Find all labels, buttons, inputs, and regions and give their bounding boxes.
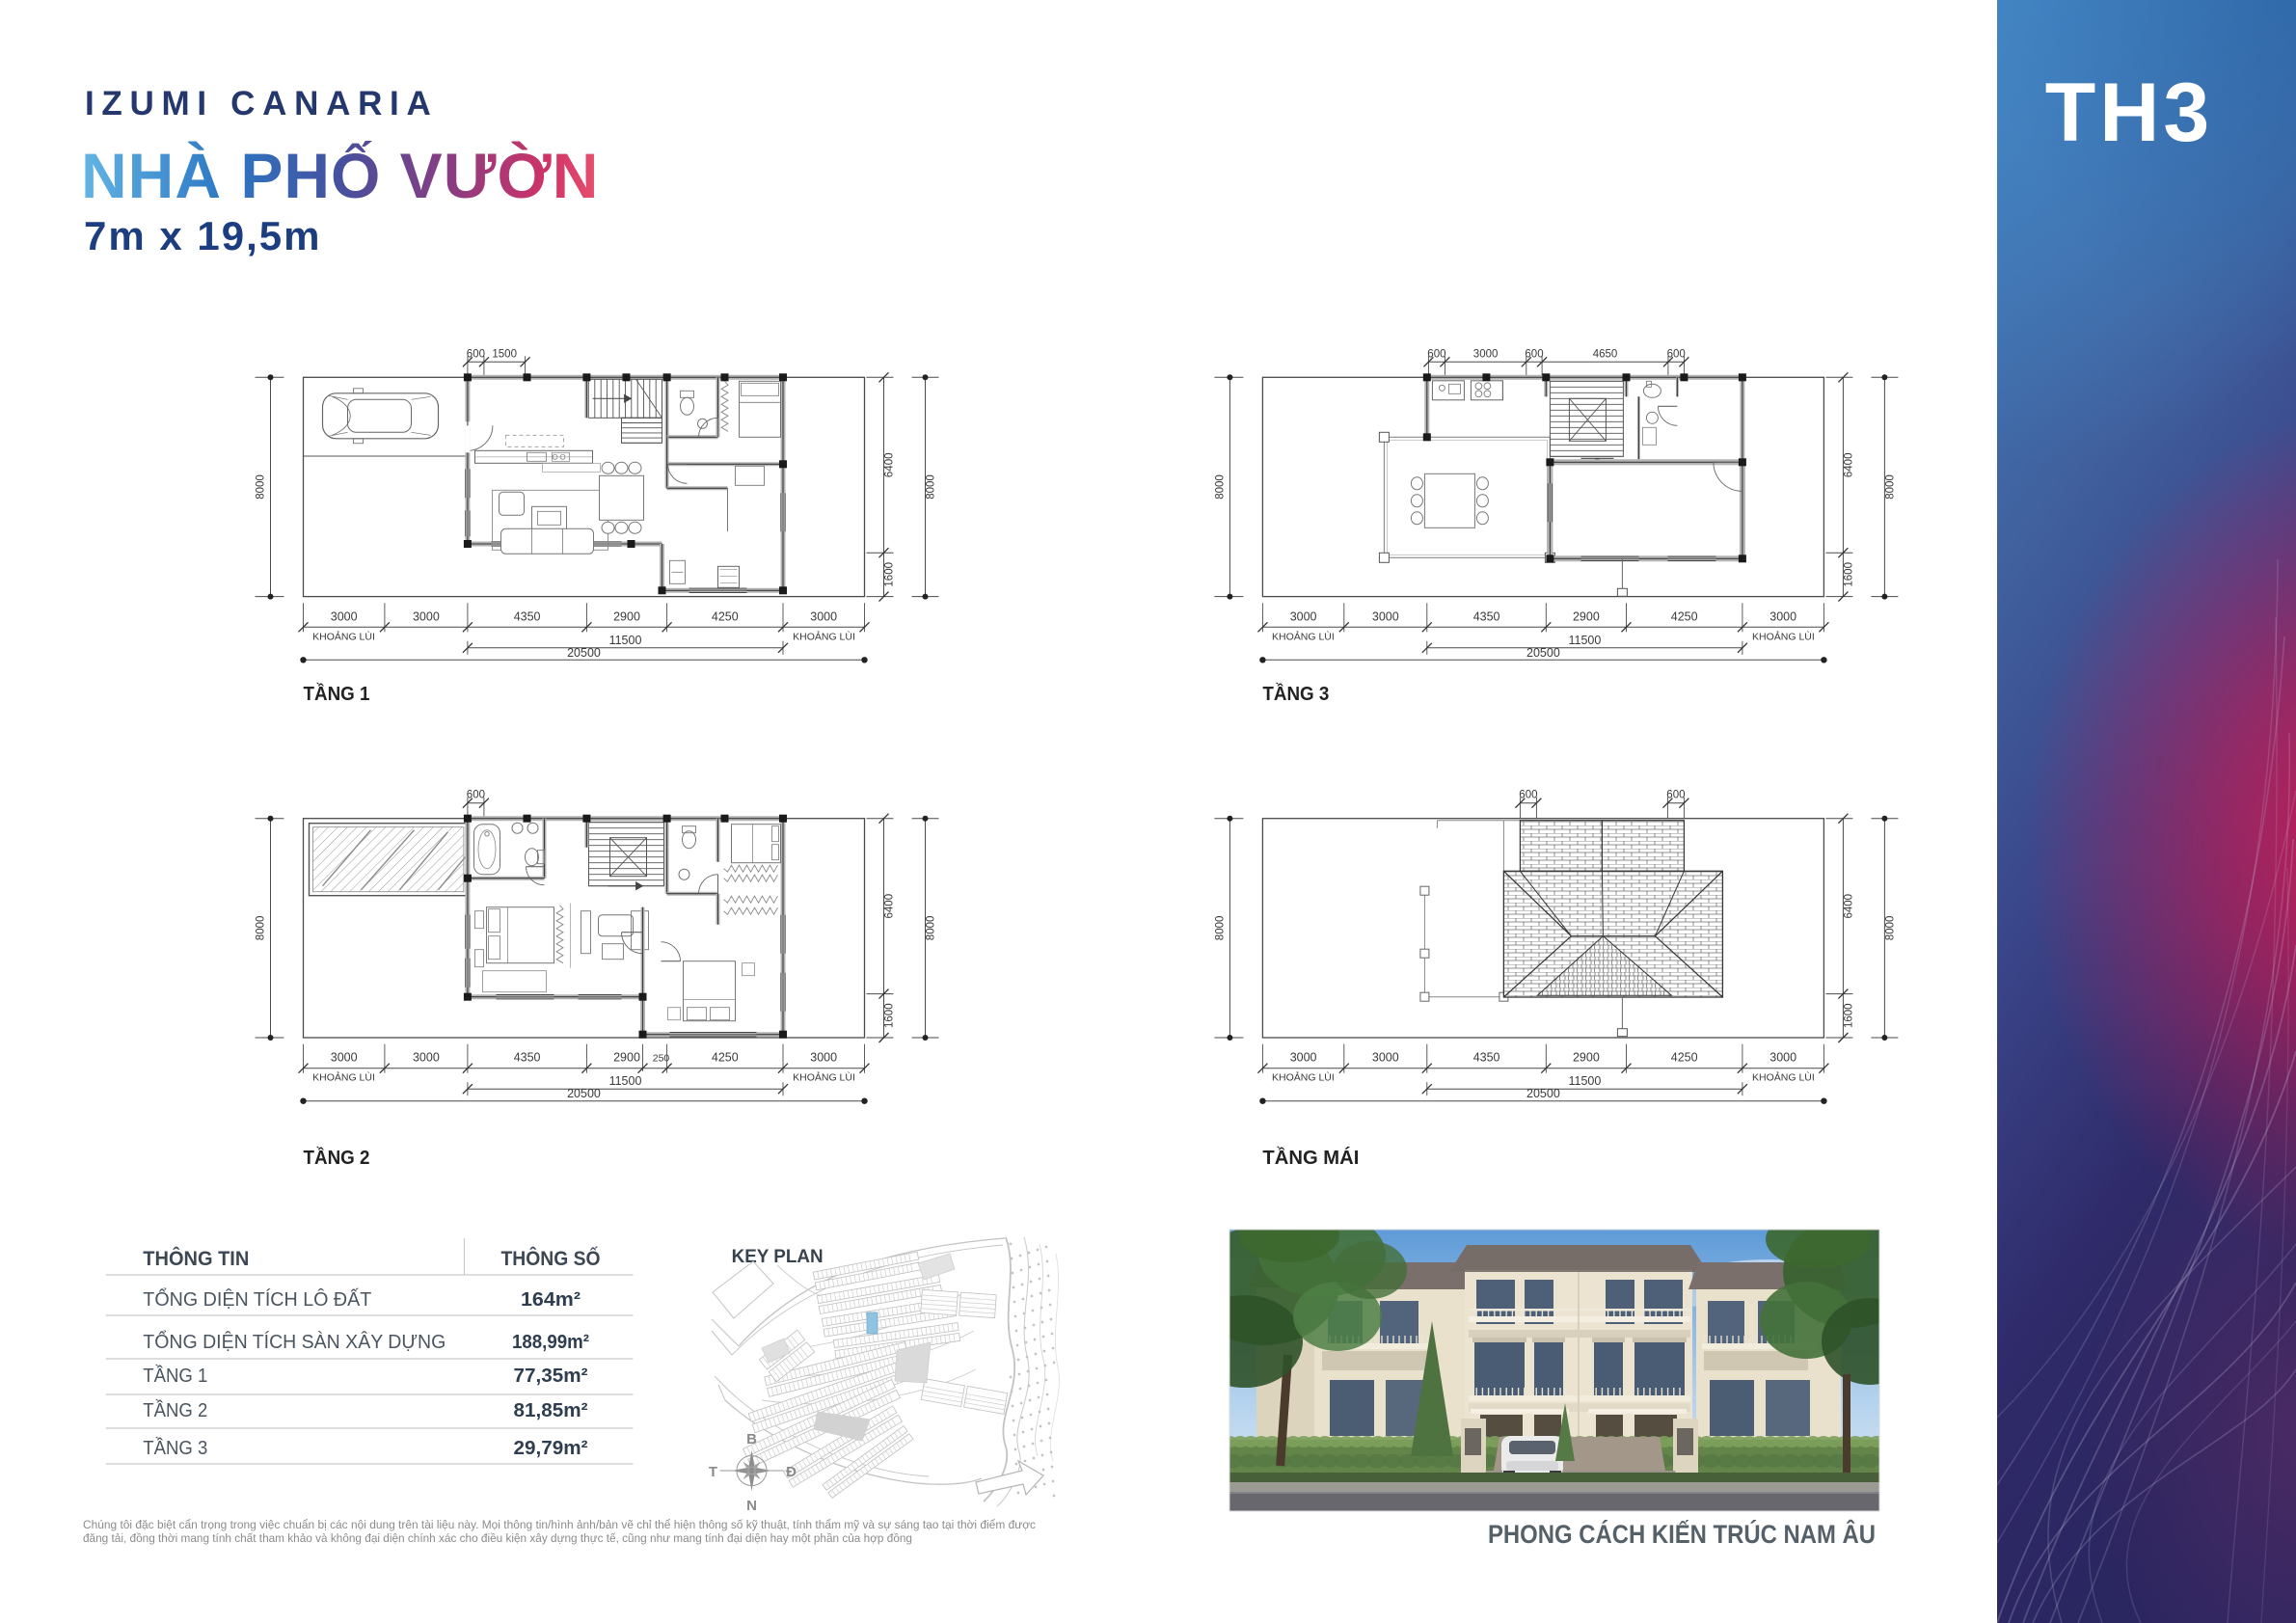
svg-text:IZUMI CANARIA: IZUMI CANARIA bbox=[85, 85, 438, 122]
svg-text:3000: 3000 bbox=[1372, 1051, 1399, 1065]
svg-text:600: 600 bbox=[1427, 348, 1445, 360]
svg-text:4350: 4350 bbox=[1473, 609, 1500, 623]
svg-text:TỔNG DIỆN TÍCH SÀN XÂY DỰNG: TỔNG DIỆN TÍCH SÀN XÂY DỰNG bbox=[143, 1330, 446, 1353]
svg-text:4350: 4350 bbox=[514, 609, 541, 623]
svg-text:600: 600 bbox=[1666, 790, 1685, 801]
svg-text:4250: 4250 bbox=[712, 609, 739, 623]
svg-text:2900: 2900 bbox=[1573, 609, 1600, 623]
svg-text:3000: 3000 bbox=[1372, 609, 1399, 623]
svg-text:3000: 3000 bbox=[413, 1051, 440, 1065]
svg-text:4650: 4650 bbox=[1593, 348, 1618, 360]
svg-text:20500: 20500 bbox=[567, 1087, 601, 1100]
svg-text:20500: 20500 bbox=[1526, 646, 1560, 660]
svg-text:3000: 3000 bbox=[331, 609, 358, 623]
svg-text:NHÀ PHỐ VƯỜN: NHÀ PHỐ VƯỜN bbox=[81, 140, 599, 211]
svg-text:TẦNG 3: TẦNG 3 bbox=[143, 1437, 207, 1459]
svg-text:1600: 1600 bbox=[884, 562, 896, 587]
svg-text:KHOẢNG LÙI: KHOẢNG LÙI bbox=[793, 630, 855, 642]
svg-text:1600: 1600 bbox=[1843, 562, 1854, 587]
svg-text:KHOẢNG LÙI: KHOẢNG LÙI bbox=[1272, 630, 1335, 642]
svg-text:TẦNG 2: TẦNG 2 bbox=[143, 1399, 207, 1421]
svg-text:KHOẢNG LÙI: KHOẢNG LÙI bbox=[312, 630, 375, 642]
svg-text:11500: 11500 bbox=[609, 1074, 642, 1088]
svg-text:PHONG CÁCH KIẾN TRÚC NAM ÂU: PHONG CÁCH KIẾN TRÚC NAM ÂU bbox=[1488, 1520, 1876, 1549]
svg-text:8000: 8000 bbox=[926, 916, 937, 941]
svg-text:3000: 3000 bbox=[810, 609, 837, 623]
svg-text:164m²: 164m² bbox=[521, 1288, 581, 1311]
svg-text:8000: 8000 bbox=[926, 474, 937, 500]
svg-text:4350: 4350 bbox=[1473, 1051, 1500, 1065]
svg-text:8000: 8000 bbox=[256, 916, 267, 941]
svg-text:8000: 8000 bbox=[256, 474, 267, 500]
svg-text:600: 600 bbox=[1667, 348, 1686, 360]
svg-text:11500: 11500 bbox=[1568, 634, 1601, 647]
svg-text:6400: 6400 bbox=[1843, 894, 1854, 919]
svg-text:TẦNG MÁI: TẦNG MÁI bbox=[1262, 1147, 1359, 1169]
svg-text:6400: 6400 bbox=[884, 894, 896, 919]
svg-text:4250: 4250 bbox=[1671, 609, 1698, 623]
svg-text:Chúng tôi đặc biệt cẩn trọng t: Chúng tôi đặc biệt cẩn trọng trong việc … bbox=[83, 1518, 1036, 1531]
svg-text:7m x 19,5m: 7m x 19,5m bbox=[84, 213, 322, 258]
svg-text:KHOẢNG LÙI: KHOẢNG LÙI bbox=[1272, 1071, 1335, 1084]
svg-text:N: N bbox=[746, 1498, 757, 1514]
svg-text:2900: 2900 bbox=[613, 1051, 640, 1065]
svg-text:4350: 4350 bbox=[514, 1051, 541, 1065]
svg-text:6400: 6400 bbox=[1843, 453, 1854, 478]
svg-text:8000: 8000 bbox=[1214, 916, 1226, 941]
svg-text:6400: 6400 bbox=[884, 453, 896, 478]
svg-text:1600: 1600 bbox=[1843, 1003, 1854, 1028]
svg-text:11500: 11500 bbox=[609, 634, 642, 647]
svg-text:600: 600 bbox=[1525, 348, 1543, 360]
svg-text:3000: 3000 bbox=[1290, 609, 1317, 623]
svg-text:THÔNG SỐ: THÔNG SỐ bbox=[501, 1245, 601, 1270]
svg-text:11500: 11500 bbox=[1568, 1074, 1601, 1088]
svg-text:KHOẢNG LÙI: KHOẢNG LÙI bbox=[793, 1071, 855, 1084]
svg-text:TẦNG 1: TẦNG 1 bbox=[143, 1365, 207, 1387]
svg-text:TẦNG 3: TẦNG 3 bbox=[1262, 683, 1329, 705]
svg-text:TẦNG 1: TẦNG 1 bbox=[304, 683, 370, 705]
svg-text:600: 600 bbox=[1519, 790, 1537, 801]
svg-text:KHOẢNG LÙI: KHOẢNG LÙI bbox=[1752, 1071, 1815, 1084]
svg-text:77,35m²: 77,35m² bbox=[514, 1365, 588, 1387]
svg-text:4250: 4250 bbox=[712, 1051, 739, 1065]
svg-text:1500: 1500 bbox=[492, 348, 517, 360]
svg-text:188,99m²: 188,99m² bbox=[512, 1331, 589, 1353]
svg-text:4250: 4250 bbox=[1671, 1051, 1698, 1065]
svg-text:3000: 3000 bbox=[331, 1051, 358, 1065]
svg-text:3000: 3000 bbox=[1769, 1051, 1796, 1065]
svg-text:THÔNG TIN: THÔNG TIN bbox=[143, 1246, 249, 1270]
svg-text:29,79m²: 29,79m² bbox=[514, 1437, 588, 1459]
svg-text:3000: 3000 bbox=[810, 1051, 837, 1065]
svg-text:Đ: Đ bbox=[786, 1464, 797, 1480]
svg-text:3000: 3000 bbox=[1473, 348, 1499, 360]
svg-text:đăng tải, đồng thời mang tính: đăng tải, đồng thời mang tính chất tham … bbox=[83, 1531, 912, 1545]
svg-text:B: B bbox=[746, 1431, 757, 1447]
svg-text:3000: 3000 bbox=[1769, 609, 1796, 623]
svg-text:3000: 3000 bbox=[413, 609, 440, 623]
svg-text:1600: 1600 bbox=[884, 1003, 896, 1028]
svg-text:600: 600 bbox=[467, 790, 485, 801]
svg-text:81,85m²: 81,85m² bbox=[514, 1399, 588, 1421]
svg-text:KEY PLAN: KEY PLAN bbox=[732, 1246, 824, 1267]
svg-text:3000: 3000 bbox=[1290, 1051, 1317, 1065]
svg-text:KHOẢNG LÙI: KHOẢNG LÙI bbox=[312, 1071, 375, 1084]
svg-text:8000: 8000 bbox=[1884, 474, 1896, 500]
svg-text:20500: 20500 bbox=[567, 646, 601, 660]
svg-text:T: T bbox=[709, 1464, 717, 1480]
svg-text:8000: 8000 bbox=[1214, 474, 1226, 500]
svg-text:2900: 2900 bbox=[1573, 1051, 1600, 1065]
svg-text:600: 600 bbox=[467, 348, 485, 360]
svg-text:2900: 2900 bbox=[613, 609, 640, 623]
svg-text:20500: 20500 bbox=[1526, 1087, 1560, 1100]
svg-text:TẦNG 2: TẦNG 2 bbox=[304, 1147, 370, 1169]
svg-text:TH3: TH3 bbox=[2045, 67, 2213, 159]
svg-text:TỔNG DIỆN TÍCH LÔ ĐẤT: TỔNG DIỆN TÍCH LÔ ĐẤT bbox=[143, 1287, 371, 1311]
svg-text:250: 250 bbox=[653, 1053, 670, 1065]
svg-text:KHOẢNG LÙI: KHOẢNG LÙI bbox=[1752, 630, 1815, 642]
svg-text:8000: 8000 bbox=[1884, 916, 1896, 941]
